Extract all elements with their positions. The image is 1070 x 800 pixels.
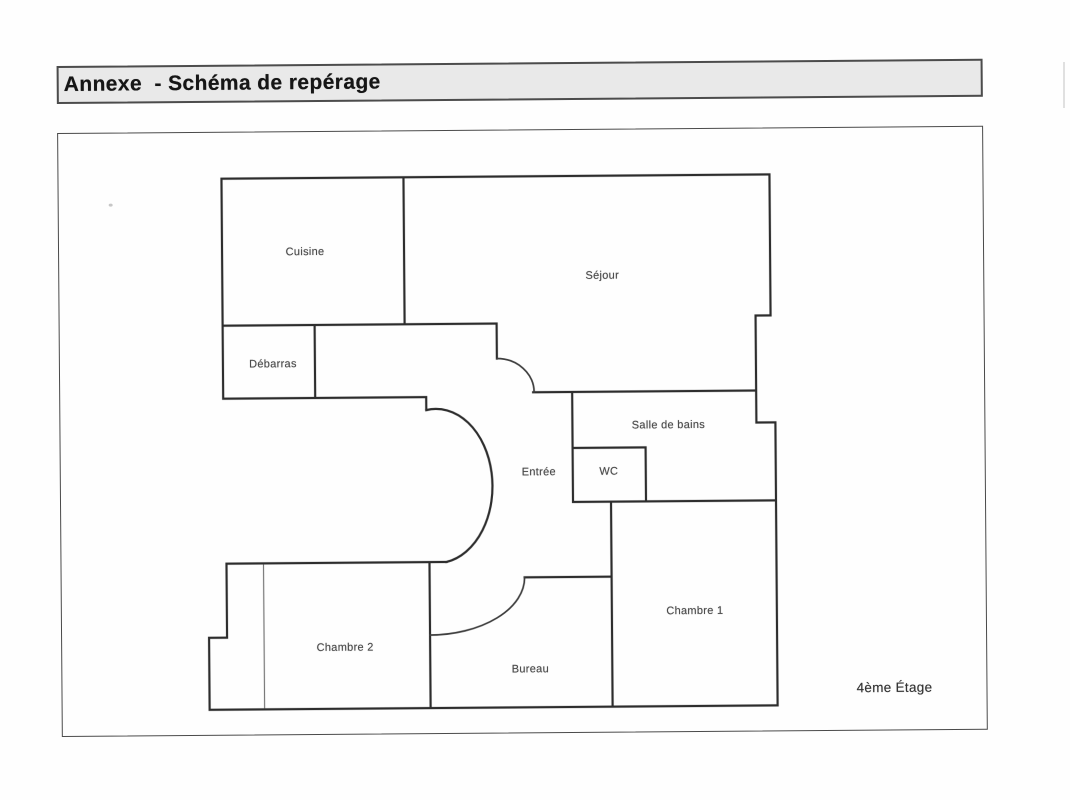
floor-level-label: 4ème Étage [857,680,933,696]
scan-content: Annexe - Schéma de repérage Cuisine Séjo… [0,0,1070,800]
scan-speck [109,204,113,207]
scan-edge-artifact [1063,62,1065,108]
room-label-entree: Entrée [522,466,556,478]
room-label-chambre-2: Chambre 2 [317,642,374,654]
room-label-sejour: Séjour [585,270,619,282]
scanned-page: Annexe - Schéma de repérage Cuisine Séjo… [0,0,1070,800]
door-arcs-path [428,358,536,635]
room-label-bureau: Bureau [512,663,549,675]
room-label-chambre-1: Chambre 1 [666,605,723,617]
room-label-cuisine: Cuisine [286,246,325,258]
room-label-debarras: Débarras [249,358,297,370]
room-label-salle-de-bains: Salle de bains [632,419,705,432]
room-label-wc: WC [599,466,618,478]
closet-partition-line [263,564,264,708]
